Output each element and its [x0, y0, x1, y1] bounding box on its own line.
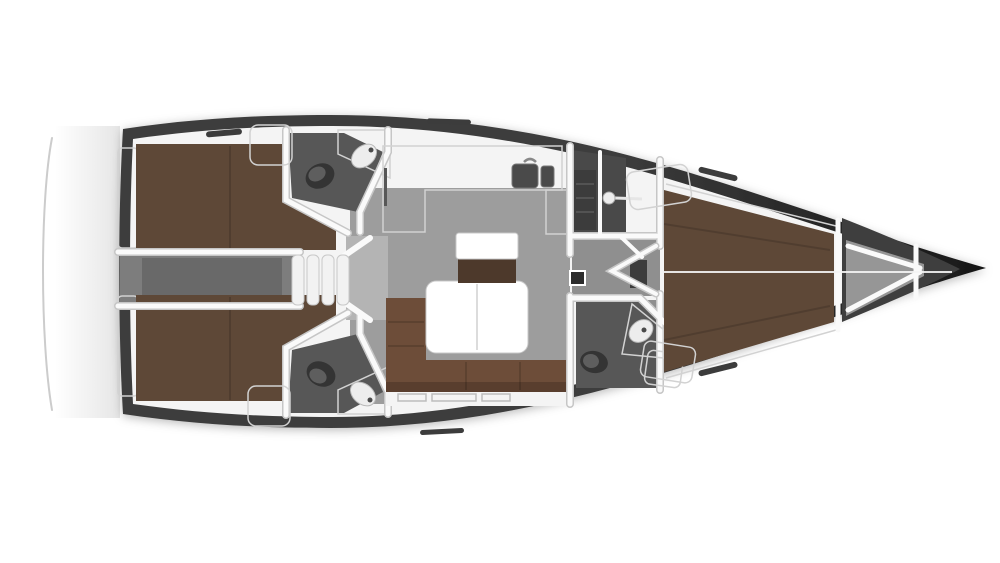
galley-sink-main [512, 164, 538, 188]
transom-line [43, 138, 52, 410]
transom-shadow [54, 126, 120, 418]
shower-bench [574, 170, 596, 230]
step-3 [322, 255, 334, 305]
bench-seat [458, 259, 516, 283]
shower-head [603, 192, 615, 204]
sofa-backrest [386, 382, 568, 392]
electrical-panel [570, 271, 585, 285]
deck-hatch-salon [420, 428, 464, 435]
aft-stb-berth [136, 295, 288, 401]
yacht-floorplan-svg [0, 0, 1000, 563]
yacht-floorplan [0, 0, 1000, 563]
aft-head-port-faucet [369, 148, 374, 153]
step-1 [292, 255, 304, 305]
step-4 [337, 255, 349, 305]
galley-sink-small [541, 166, 554, 187]
side-table [456, 233, 518, 259]
aft-head-stb-faucet [368, 398, 373, 403]
fwd-head-faucet [642, 328, 647, 333]
bow [838, 218, 960, 330]
oven-handle [384, 168, 387, 206]
aft-port-berth [136, 144, 288, 250]
step-2 [307, 255, 319, 305]
shower-hose [615, 198, 642, 199]
